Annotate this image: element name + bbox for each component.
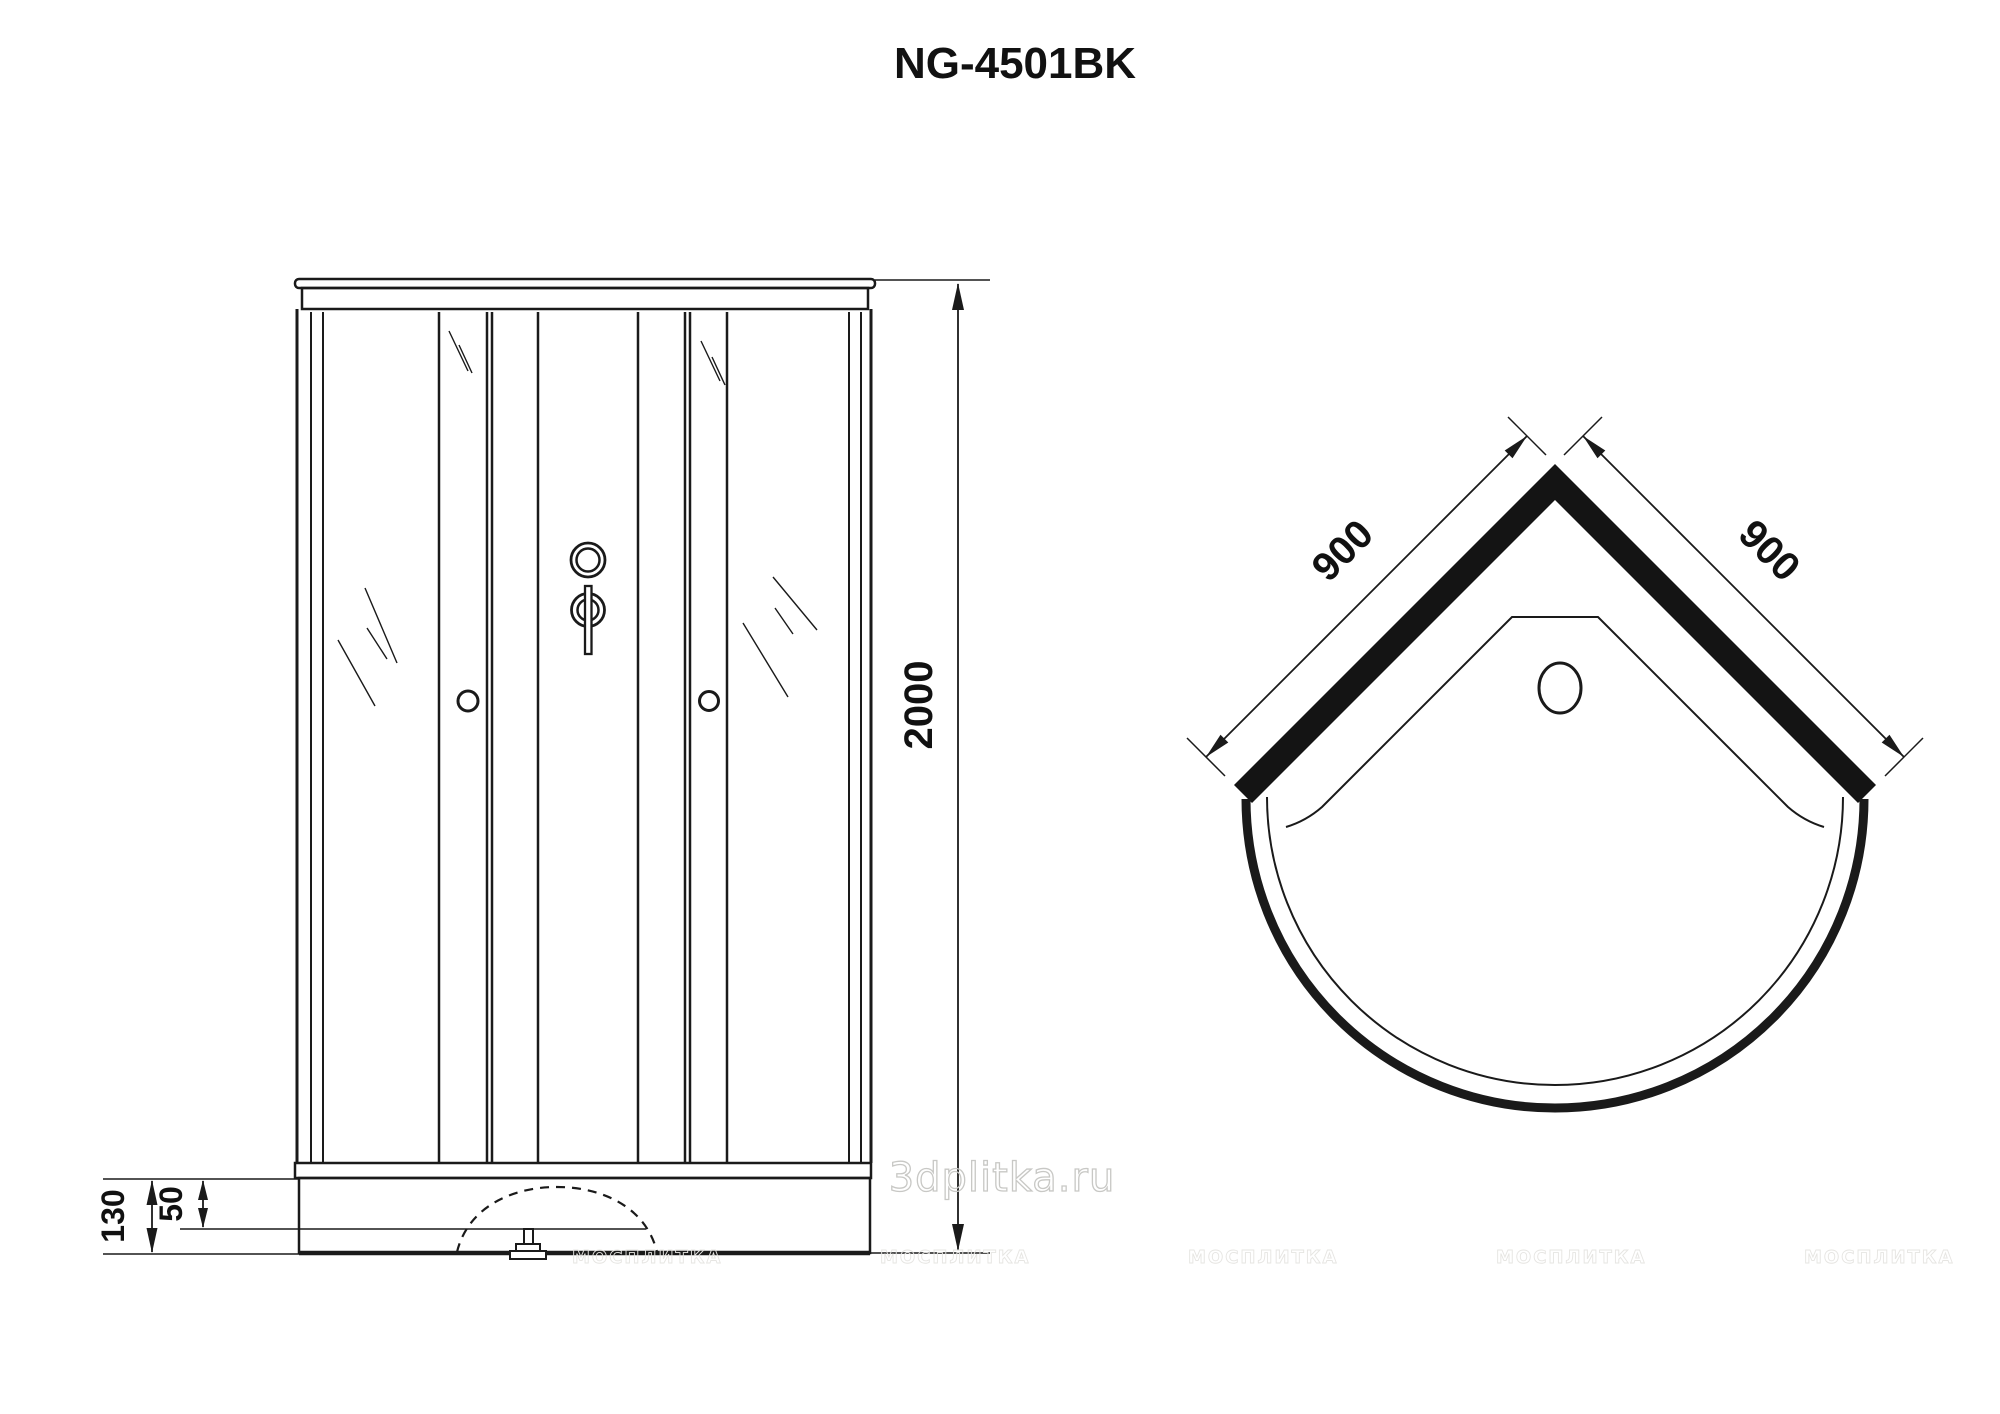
- base-tray: [180, 1178, 870, 1259]
- model-title: NG-4501BK: [894, 39, 1136, 88]
- right-side-dimension-label: 900: [1730, 512, 1808, 590]
- dimension-total-height: 2000: [897, 283, 964, 1251]
- front-curved-edge: [1246, 799, 1864, 1108]
- left-door-knob: [458, 691, 478, 711]
- height-dimension-label: 2000: [897, 661, 941, 750]
- tray-front-edge: [1267, 797, 1843, 1085]
- right-door-knob: [700, 692, 719, 711]
- dimension-right-side: 900: [1583, 436, 1904, 757]
- glass-reflections: [338, 331, 817, 706]
- left-side-dimension-label: 900: [1304, 512, 1382, 590]
- tile-watermark: МОСПЛИТКА: [1496, 1247, 1646, 1268]
- drain-hole: [1539, 663, 1581, 713]
- technical-drawing-page: NG-4501BK: [0, 0, 2000, 1414]
- roof-top-lip: [295, 279, 875, 288]
- dimension-base-height: 130: [95, 1180, 158, 1253]
- roof-fascia: [302, 288, 868, 309]
- skirt-cutout-dashed-arch: [457, 1187, 657, 1252]
- center-watermark: 3dplitka.ru: [889, 1155, 1116, 1201]
- tile-watermark: МОСПЛИТКА: [1804, 1247, 1954, 1268]
- dimension-tray-inner-height: 50: [153, 1180, 208, 1228]
- frame-and-glass: [297, 309, 871, 1163]
- bottom-rail: [295, 1163, 871, 1178]
- tray-height-dimension-label: 50: [153, 1186, 189, 1222]
- base-height-dimension-label: 130: [95, 1189, 131, 1242]
- door-handle: [571, 543, 605, 654]
- tile-watermark: МОСПЛИТКА: [880, 1247, 1030, 1268]
- top-view: 900 900: [1187, 417, 1923, 1108]
- extension-lines: [103, 280, 990, 1254]
- front-view: 130 50 2000: [95, 279, 990, 1259]
- dimension-left-side: 900: [1206, 436, 1527, 757]
- tile-watermark: МОСПЛИТКА: [1188, 1247, 1338, 1268]
- tray-outline: [1286, 617, 1824, 827]
- tray-foot: [510, 1229, 546, 1259]
- tile-watermark: МОСПЛИТКА: [572, 1247, 722, 1268]
- shower-cabin-drawing: NG-4501BK: [0, 0, 2000, 1414]
